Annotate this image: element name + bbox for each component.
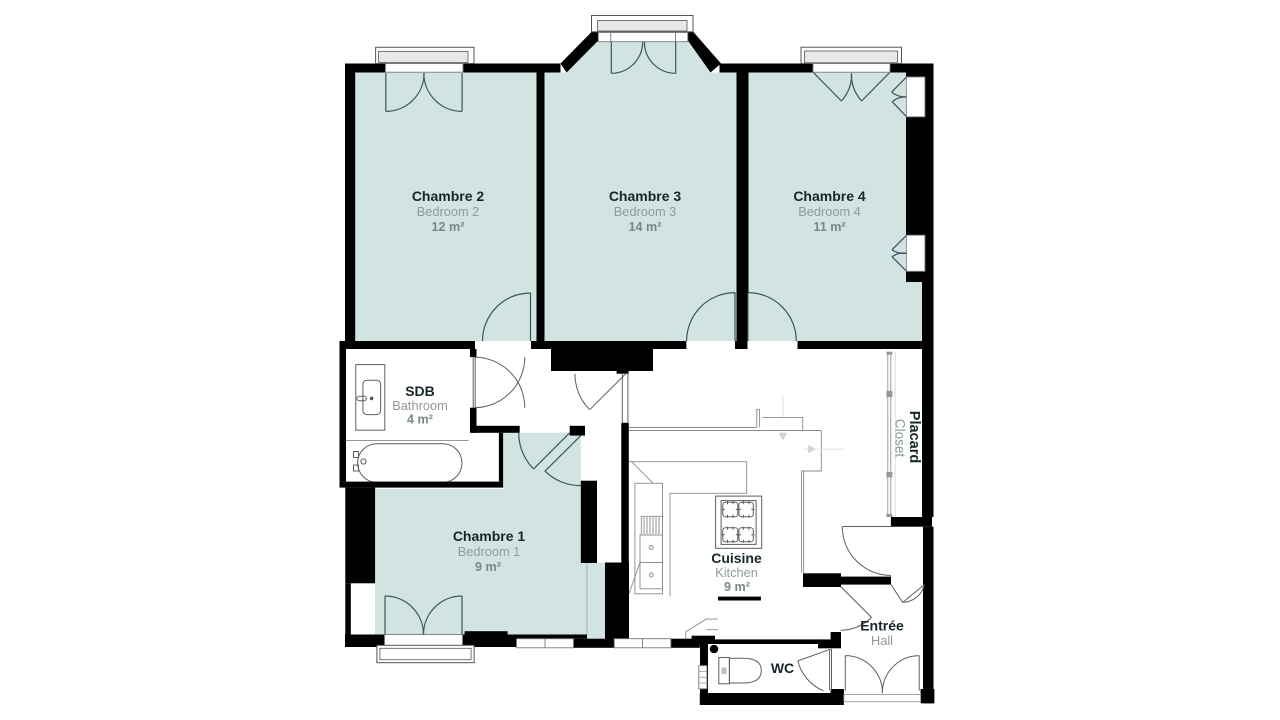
svg-text:SDB: SDB [405, 383, 435, 399]
svg-text:Chambre 1: Chambre 1 [453, 528, 526, 544]
svg-text:11 m²: 11 m² [813, 220, 845, 234]
svg-text:WC: WC [771, 660, 794, 676]
svg-text:12 m²: 12 m² [432, 220, 465, 234]
svg-text:4 m²: 4 m² [407, 413, 433, 427]
svg-text:Closet: Closet [893, 419, 908, 458]
svg-text:Bedroom 2: Bedroom 2 [417, 204, 480, 219]
svg-text:14 m²: 14 m² [629, 220, 662, 234]
svg-text:9 m²: 9 m² [475, 560, 501, 574]
svg-text:Chambre 4: Chambre 4 [793, 188, 866, 204]
svg-text:Bathroom: Bathroom [392, 398, 447, 413]
svg-text:Bedroom 1: Bedroom 1 [458, 544, 521, 559]
svg-text:Hall: Hall [871, 633, 893, 648]
svg-text:Cuisine: Cuisine [711, 550, 762, 566]
svg-text:Chambre 2: Chambre 2 [412, 188, 485, 204]
svg-text:Entrée: Entrée [860, 618, 904, 634]
svg-text:Kitchen: Kitchen [715, 565, 758, 580]
svg-text:Bedroom 4: Bedroom 4 [798, 204, 861, 219]
svg-text:9 m²: 9 m² [724, 580, 750, 594]
svg-text:Chambre 3: Chambre 3 [609, 188, 682, 204]
svg-text:Bedroom 3: Bedroom 3 [614, 204, 677, 219]
